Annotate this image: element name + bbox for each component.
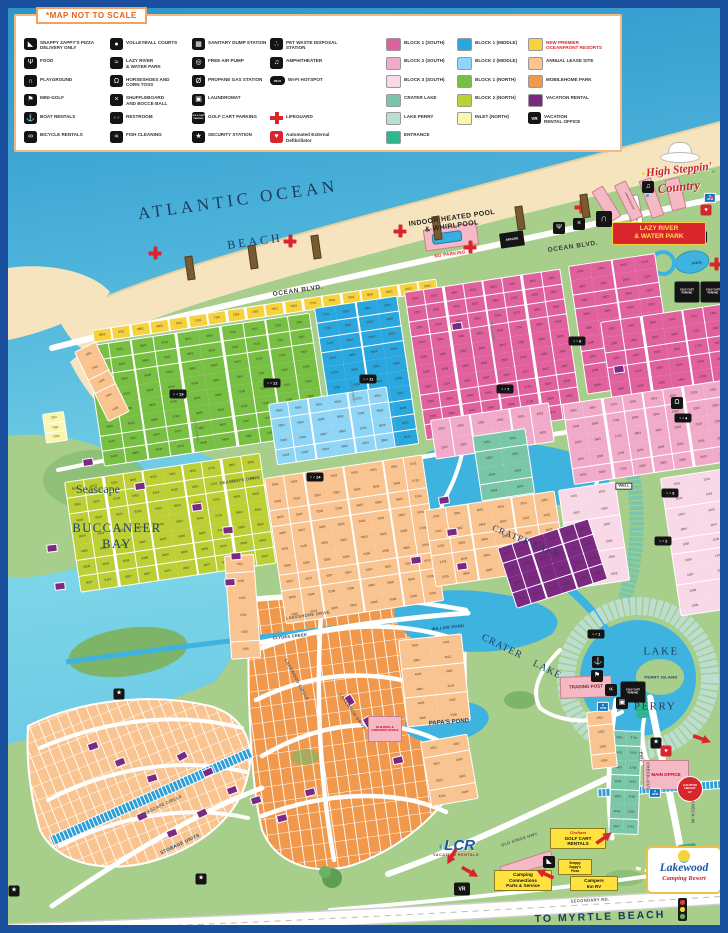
legend-item-label: ANNUAL LEASE SITE	[546, 57, 593, 64]
color-swatch	[386, 112, 401, 125]
legend-item-minigolf: ⚑MINI-GOLF	[24, 94, 108, 106]
propane-icon: Ø	[192, 75, 205, 87]
lazy-river-badge-line1: LAZY RIVER	[613, 225, 705, 233]
legend-item-label: FREE AIR PUMP	[208, 57, 244, 64]
map-not-to-scale-tab: *MAP NOT TO SCALE	[36, 7, 147, 24]
legend-item-label: PET WASTE DISPOSAL STATION	[286, 38, 354, 51]
horseshoes-icon: Ω	[110, 75, 123, 87]
pizza-icon: ◣	[24, 38, 37, 50]
color-swatch	[457, 57, 472, 70]
sun-icon	[678, 850, 690, 862]
legend-item-label: MOBILEHOME PARK	[546, 75, 592, 82]
legend-item-label: PLAYGROUND	[40, 75, 72, 82]
legend-item-horseshoes: ΩHORSESHOES ANDCORN TOSS	[110, 75, 194, 88]
legend-item-label: BLOCK 1 (SOUTH)	[404, 38, 445, 45]
legend-item-label: BICYCLE RENTALS	[40, 131, 83, 138]
legend-item-petwaste: ∴PET WASTE DISPOSAL STATION	[270, 38, 354, 51]
legend-item-label: BLOCK 1 (MIDDLE)	[475, 38, 517, 45]
lcr-name: ◖LCR	[424, 838, 488, 853]
color-swatch	[386, 38, 401, 51]
color-swatch	[528, 75, 543, 88]
color-swatch	[386, 57, 401, 70]
music-note-dot	[710, 196, 713, 199]
frame-bottom	[0, 925, 728, 933]
wifi-icon: WI-FI	[270, 76, 285, 85]
restroom-icon: ♀♂	[110, 112, 123, 124]
lakewood-subtitle: Camping Resort	[648, 875, 720, 882]
legend-item-label: SECURITY STATION	[208, 131, 252, 138]
color-swatch	[457, 75, 472, 88]
legend-item-label: Automated External Defibrillator	[286, 131, 354, 144]
legend-item-propane: ØPROPANE GAS STATION	[192, 75, 276, 87]
legend-item-label: BLOCK 2 (NORTH)	[475, 94, 516, 101]
lazy-river-badge: LAZY RIVER & WATER PARK	[612, 222, 706, 245]
minigolf-icon: ⚑	[24, 94, 37, 106]
amphitheater-icon: ♫	[270, 57, 283, 69]
lazy-river-badge-line2: & WATER PARK	[613, 233, 705, 241]
legend-item-lazyriver: ≈LAZY RIVER& WATER PARK	[110, 57, 194, 70]
color-swatch	[386, 131, 401, 144]
legend-item-pizza: ◣SNAPPY ZAPPY'S PIZZADELIVERY ONLY	[24, 38, 108, 51]
music-note-dot	[642, 172, 645, 175]
color-swatch	[386, 94, 401, 107]
food-icon: Ψ	[24, 57, 37, 69]
legend-item-label: LIFEGUARD	[286, 112, 313, 119]
legend-item-label: NEW PREMIEROCEANFRONT RESORTS	[546, 38, 602, 51]
legend-item-airpump: ◎FREE AIR PUMP	[192, 57, 276, 69]
legend-item-label: ENTRANCE	[404, 131, 430, 138]
legend-color-vroffice: VRVACATIONRENTAL OFFICE	[528, 112, 616, 125]
airpump-icon: ◎	[192, 57, 205, 69]
aed-icon: ♥	[270, 131, 283, 143]
frame-left	[0, 0, 8, 933]
lifeguard-cross-icon	[270, 112, 283, 124]
lakewood-camping-resort-logo: Lakewood Camping Resort	[646, 846, 722, 894]
lcr-vacation-rentals-logo: ◖LCR VACATION RENTALS	[424, 838, 488, 872]
color-swatch	[457, 94, 472, 107]
bicycle-icon: ∞	[24, 131, 37, 143]
legend-item-shuffleboard: ×SHUFFLEBOARDAND BOCCE BALL	[110, 94, 194, 107]
legend-item-label: SNAPPY ZAPPY'S PIZZADELIVERY ONLY	[40, 38, 94, 51]
legend-item-label: SHUFFLEBOARDAND BOCCE BALL	[126, 94, 167, 107]
legend-item-golfcart: GOLF CART PARKINGGOLF CART PARKING	[192, 112, 276, 124]
legend-color-entrance: ENTRANCE	[386, 131, 474, 144]
legend-item-label: PROPANE GAS STATION	[208, 75, 262, 82]
vacation-rental-office-icon: VR	[528, 112, 541, 124]
legend-item-label: VACATION RENTAL	[546, 94, 589, 101]
legend-item-volleyball: ●VOLLEYBALL COURTS	[110, 38, 194, 50]
frame-right	[720, 0, 728, 933]
legend-color-premier: NEW PREMIEROCEANFRONT RESORTS	[528, 38, 616, 51]
legend-item-food: ΨFOOD	[24, 57, 108, 69]
legend-color-vacation: VACATION RENTAL	[528, 94, 616, 107]
lcr-subtitle: VACATION RENTALS	[424, 853, 488, 857]
dump-icon: ▦	[192, 38, 205, 50]
legend-color-mobile: MOBILEHOME PARK	[528, 75, 616, 88]
music-note-dot	[646, 194, 649, 197]
security-icon: ★	[192, 131, 205, 143]
lazyriver-icon: ≈	[110, 57, 123, 69]
resort-map: 6601670168016901700171017201730174017501…	[0, 0, 728, 933]
legend-item-label: GOLF CART PARKING	[208, 112, 257, 119]
color-swatch	[528, 38, 543, 51]
legend-item-label: AMPHITHEATER	[286, 57, 322, 64]
legend-item-playground: ∩PLAYGROUND	[24, 75, 108, 87]
legend-item-dump: ▦SANITARY DUMP STATION	[192, 38, 276, 50]
legend-item-label: BLOCK 2 (SOUTH)	[404, 57, 445, 64]
legend-item-restroom: ♀♂RESTROOM	[110, 112, 194, 124]
legend-item-amphitheater: ♫AMPHITHEATER	[270, 57, 354, 69]
legend-item-label: MINI-GOLF	[40, 94, 64, 101]
legend-item-label: RESTROOM	[126, 112, 153, 119]
legend-item-label: BLOCK 2 (MIDDLE)	[475, 57, 517, 64]
legend-item-label: BLOCK 1 (NORTH)	[475, 75, 516, 82]
legend-color-annual: ANNUAL LEASE SITE	[528, 57, 616, 70]
legend-item-label: SANITARY DUMP STATION	[208, 38, 266, 45]
legend-item-label: HORSESHOES ANDCORN TOSS	[126, 75, 169, 88]
legend-item-label: LAUNDROMAT	[208, 94, 241, 101]
legend-item-label: CRATER LAKE	[404, 94, 437, 101]
legend-item-label: FOOD	[40, 57, 53, 64]
legend-item-lifeguard: LIFEGUARD	[270, 112, 354, 124]
music-note-dot	[712, 170, 715, 173]
high-steppin-country-logo: High Steppin' Country	[632, 142, 726, 216]
legend-item-laundromat: ▣LAUNDROMAT	[192, 94, 276, 106]
legend-item-label: LAZY RIVER& WATER PARK	[126, 57, 161, 70]
legend-item-label: BOAT RENTALS	[40, 112, 75, 119]
playground-icon: ∩	[24, 75, 37, 87]
legend-item-label: INLET (NORTH)	[475, 112, 509, 119]
map-legend: *MAP NOT TO SCALE ◣SNAPPY ZAPPY'S PIZZAD…	[14, 14, 622, 152]
golf-cart-parking-icon: GOLF CART PARKING	[192, 112, 205, 124]
color-swatch	[528, 94, 543, 107]
laundromat-icon: ▣	[192, 94, 205, 106]
fishcleaning-icon: ∝	[110, 131, 123, 143]
volleyball-icon: ●	[110, 38, 123, 50]
lakewood-name: Lakewood	[648, 862, 720, 875]
legend-item-label: BLOCK 3 (SOUTH)	[404, 75, 445, 82]
legend-item-label: VOLLEYBALL COURTS	[126, 38, 177, 45]
legend-item-label: FISH CLEANING	[126, 131, 162, 138]
legend-item-label: WI-FI HOTSPOT	[288, 75, 323, 82]
legend-item-fishcleaning: ∝FISH CLEANING	[110, 131, 194, 143]
legend-item-security: ★SECURITY STATION	[192, 131, 276, 143]
boat-icon: ⚓	[24, 112, 37, 124]
legend-item-label: VACATIONRENTAL OFFICE	[544, 112, 580, 125]
color-swatch	[457, 112, 472, 125]
petwaste-icon: ∴	[270, 38, 283, 50]
color-swatch	[386, 75, 401, 88]
legend-item-bicycle: ∞BICYCLE RENTALS	[24, 131, 108, 143]
legend-item-aed: ♥Automated External Defibrillator	[270, 131, 354, 144]
shuffleboard-icon: ×	[110, 94, 123, 106]
color-swatch	[528, 57, 543, 70]
legend-item-wifi: WI-FIWI-FI HOTSPOT	[270, 75, 354, 85]
legend-item-boat: ⚓BOAT RENTALS	[24, 112, 108, 124]
legend-item-label: LAKE PERRY	[404, 112, 433, 119]
color-swatch	[457, 38, 472, 51]
